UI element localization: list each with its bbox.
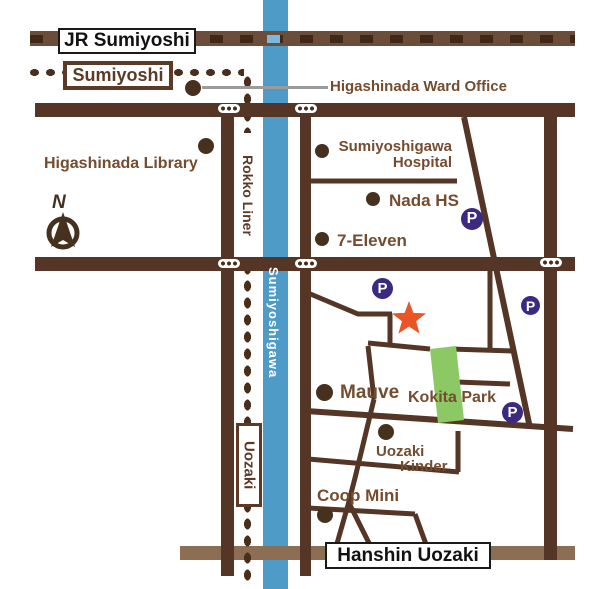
- nada-hs-label: Nada HS: [389, 192, 459, 210]
- mauve-dot: [316, 384, 333, 401]
- destination-star-icon: [392, 301, 426, 334]
- parking-letter: P: [507, 404, 517, 421]
- compass-label: N: [52, 192, 66, 214]
- library-dot: [198, 138, 214, 154]
- traffic-signal-icon: [295, 259, 317, 268]
- kokita-park-label: Kokita Park: [408, 390, 496, 407]
- road-east-vertical: [544, 117, 557, 560]
- library-label: Higashinada Library: [44, 156, 198, 173]
- mauve-label: Mauve: [340, 383, 399, 403]
- parking-letter: P: [526, 298, 535, 314]
- river-name-label: Sumiyoshigawa: [266, 267, 281, 409]
- seven-eleven-dot: [315, 232, 329, 246]
- parking-icon: P: [521, 296, 540, 315]
- coop-mini-label: Coop Mini: [317, 487, 399, 505]
- kinder-dot: [378, 424, 394, 440]
- ward-office-label: Higashinada Ward Office: [330, 79, 507, 95]
- coop-mini-dot: [317, 507, 333, 523]
- hospital-dot: [315, 144, 329, 158]
- ward-office-dot: [185, 80, 201, 96]
- seven-eleven-label: 7-Eleven: [337, 232, 407, 250]
- traffic-signal-icon: [295, 104, 317, 113]
- road-west-vertical: [221, 117, 234, 576]
- compass-icon: [49, 212, 77, 247]
- traffic-signal-icon: [540, 258, 562, 267]
- parking-icon: P: [372, 278, 393, 299]
- traffic-signal-icon: [218, 104, 240, 113]
- kinder-label-line2: Kinder: [400, 459, 448, 475]
- hospital-label-line1: Sumiyoshigawa: [336, 139, 452, 155]
- parking-icon: P: [461, 208, 483, 230]
- jr-railway-river-dash: [267, 35, 280, 43]
- station-box-hanshin-uozaki: Hanshin Uozaki: [325, 542, 491, 569]
- access-map: P P P P N JR Sumiyoshi Sumiyoshi Rokko L…: [0, 0, 600, 589]
- traffic-signal-icon: [218, 259, 240, 268]
- station-box-jr-sumiyoshi: JR Sumiyoshi: [58, 28, 196, 54]
- parking-letter: P: [377, 280, 387, 297]
- road-mid-vertical: [300, 117, 311, 576]
- parking-icon: P: [502, 402, 523, 423]
- parking-letter: P: [467, 210, 478, 228]
- nada-hs-dot: [366, 192, 380, 206]
- hospital-label: Sumiyoshigawa Hospital: [336, 139, 452, 171]
- minor-roads: [300, 117, 573, 547]
- rokko-liner-label-box: Rokko Liner: [237, 133, 259, 257]
- hospital-label-line2: Hospital: [336, 155, 452, 171]
- ward-office-pointer-line: [202, 86, 328, 89]
- uozaki-label-box: Uozaki: [236, 423, 262, 507]
- kokita-park-area: [430, 346, 464, 423]
- station-box-sumiyoshi: Sumiyoshi: [63, 61, 173, 90]
